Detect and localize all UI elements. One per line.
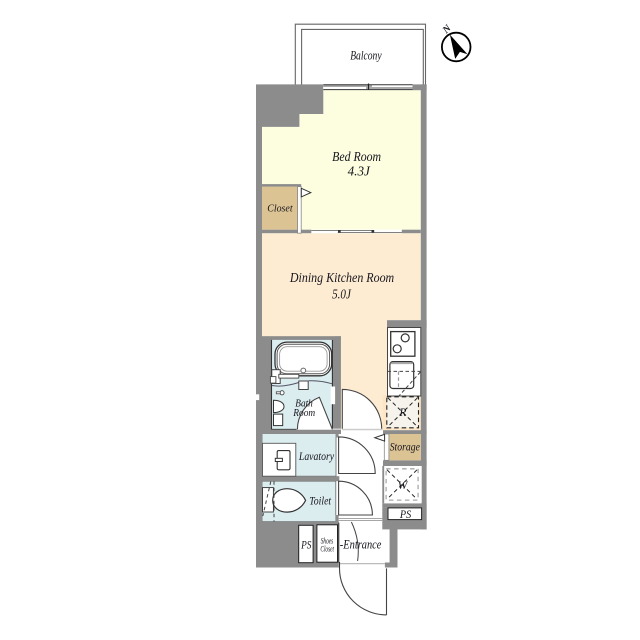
svg-text:Closet: Closet	[320, 544, 334, 553]
svg-text:Room: Room	[292, 408, 315, 419]
svg-text:PS: PS	[300, 540, 311, 552]
svg-text:Dining Kitchen Room: Dining Kitchen Room	[289, 270, 394, 285]
svg-text:Lavatory: Lavatory	[298, 451, 335, 463]
svg-text:Closet: Closet	[267, 203, 293, 214]
svg-text:5.0J: 5.0J	[332, 287, 352, 302]
svg-text:Balcony: Balcony	[350, 47, 382, 62]
svg-text:4.3J: 4.3J	[348, 164, 371, 179]
svg-text:Toilet: Toilet	[309, 494, 331, 508]
svg-text:PS: PS	[399, 509, 411, 521]
svg-text:R: R	[398, 407, 406, 419]
svg-text:-Entrance: -Entrance	[340, 537, 382, 551]
svg-text:Bed Room: Bed Room	[332, 149, 381, 164]
svg-text:N: N	[440, 22, 454, 36]
svg-text:W: W	[398, 480, 409, 492]
svg-text:Storage: Storage	[390, 440, 421, 454]
